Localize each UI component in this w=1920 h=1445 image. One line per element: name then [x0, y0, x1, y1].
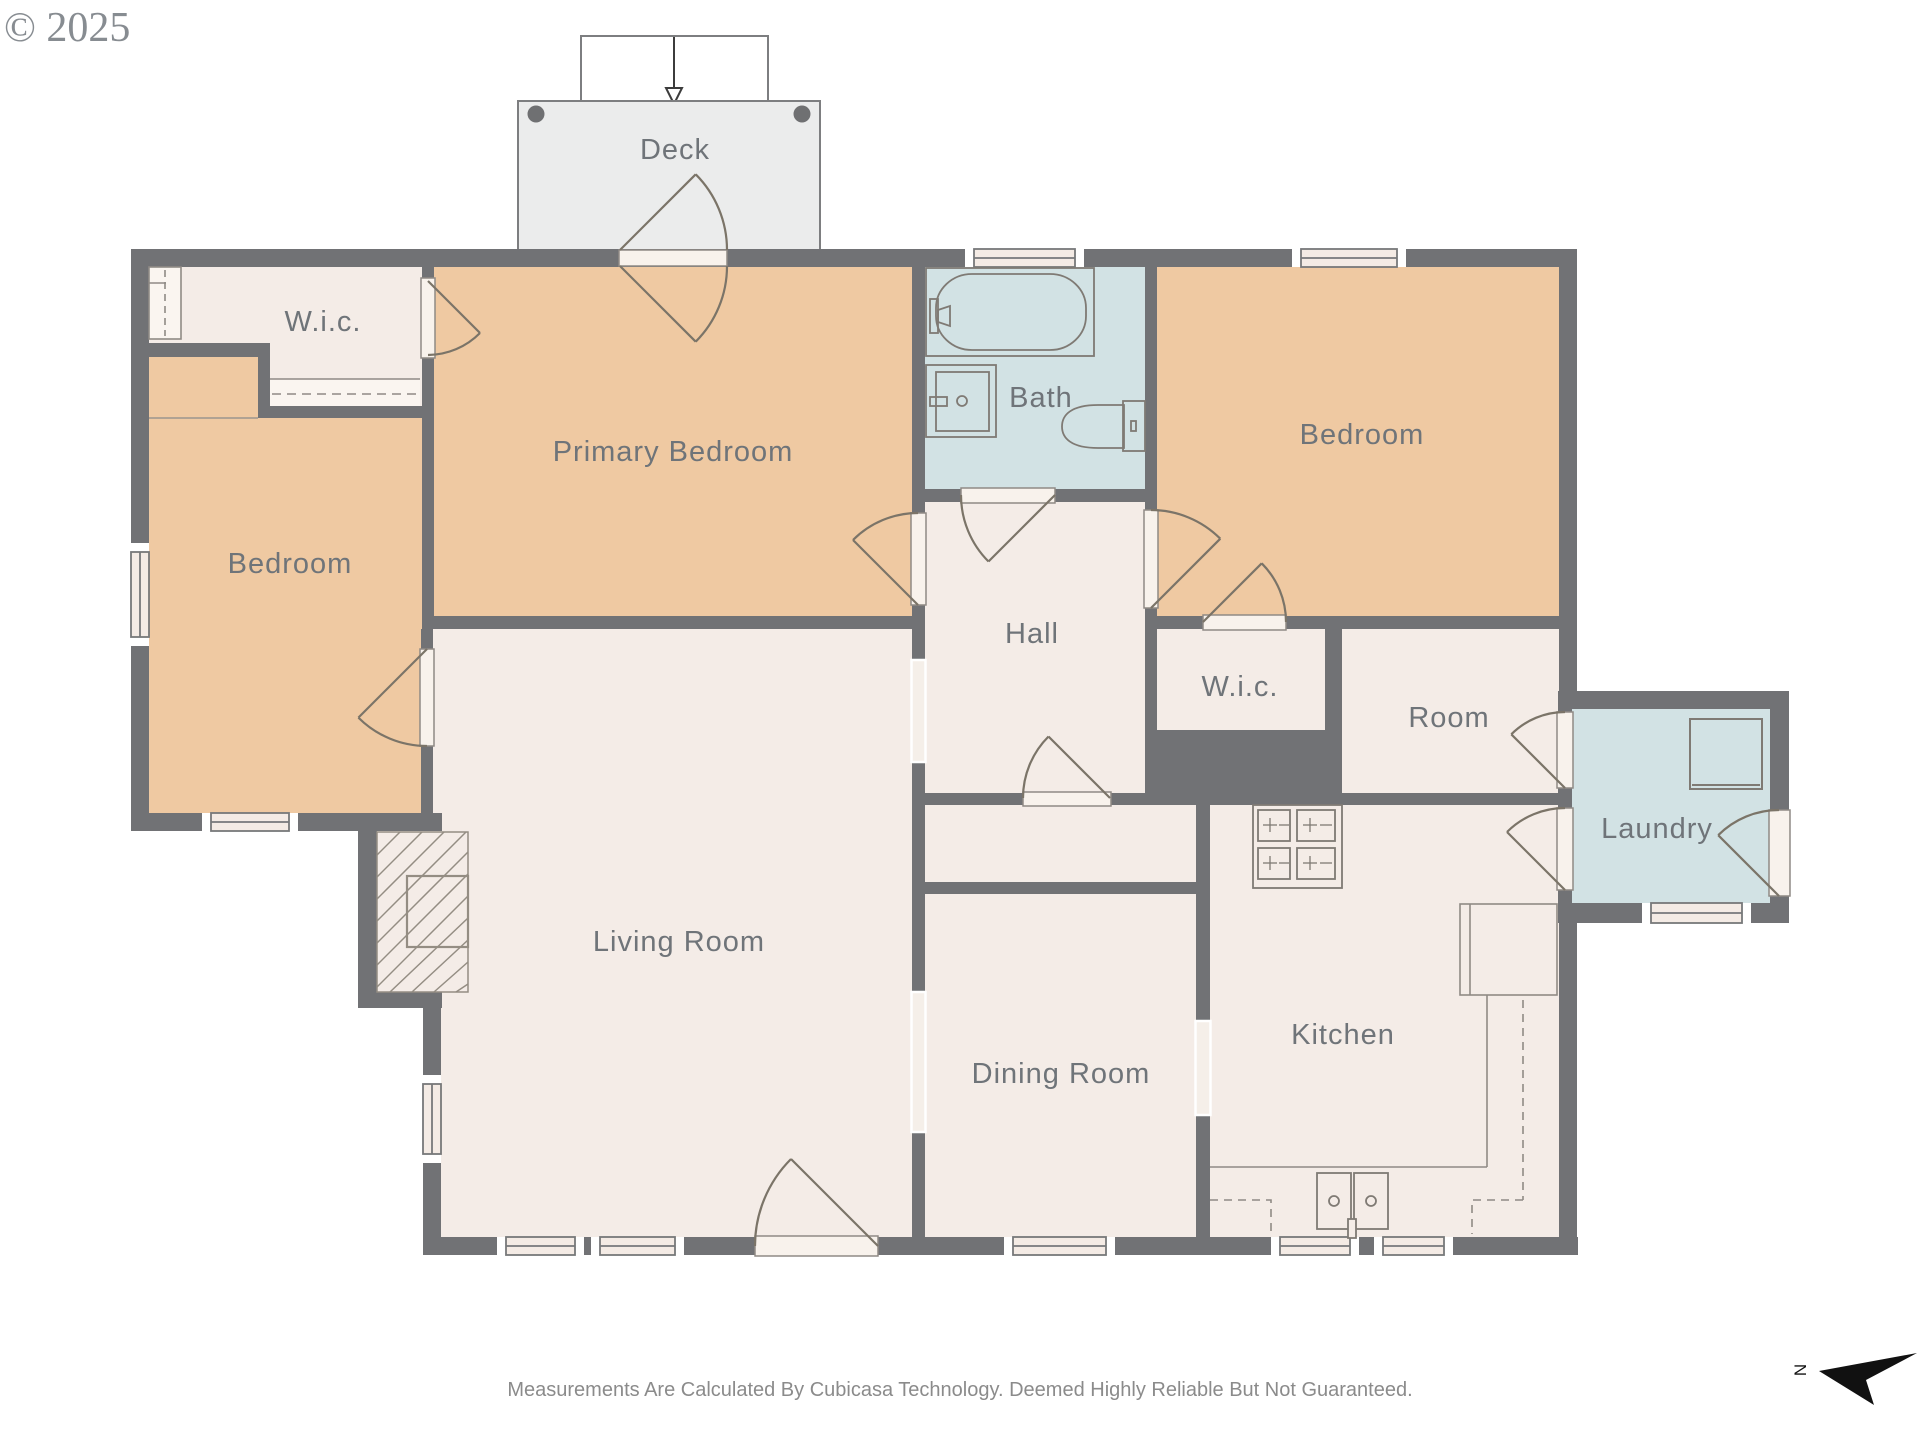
svg-text:Living Room: Living Room	[593, 926, 765, 958]
svg-text:W.i.c.: W.i.c.	[1202, 671, 1279, 703]
svg-text:N: N	[1791, 1364, 1810, 1376]
svg-text:Bath: Bath	[1009, 382, 1073, 414]
svg-text:Hall: Hall	[1005, 618, 1059, 650]
svg-text:W.i.c.: W.i.c.	[285, 306, 362, 338]
svg-text:© 2025: © 2025	[4, 5, 130, 51]
svg-text:Bedroom: Bedroom	[228, 548, 353, 580]
svg-text:Laundry: Laundry	[1601, 813, 1713, 845]
svg-text:Measurements Are Calculated By: Measurements Are Calculated By Cubicasa …	[507, 1379, 1412, 1401]
svg-text:Deck: Deck	[640, 134, 710, 166]
svg-text:Kitchen: Kitchen	[1291, 1019, 1395, 1051]
svg-text:Primary Bedroom: Primary Bedroom	[553, 436, 794, 468]
svg-text:Bedroom: Bedroom	[1300, 419, 1425, 451]
svg-text:Dining Room: Dining Room	[972, 1058, 1151, 1090]
svg-text:Room: Room	[1408, 702, 1489, 734]
